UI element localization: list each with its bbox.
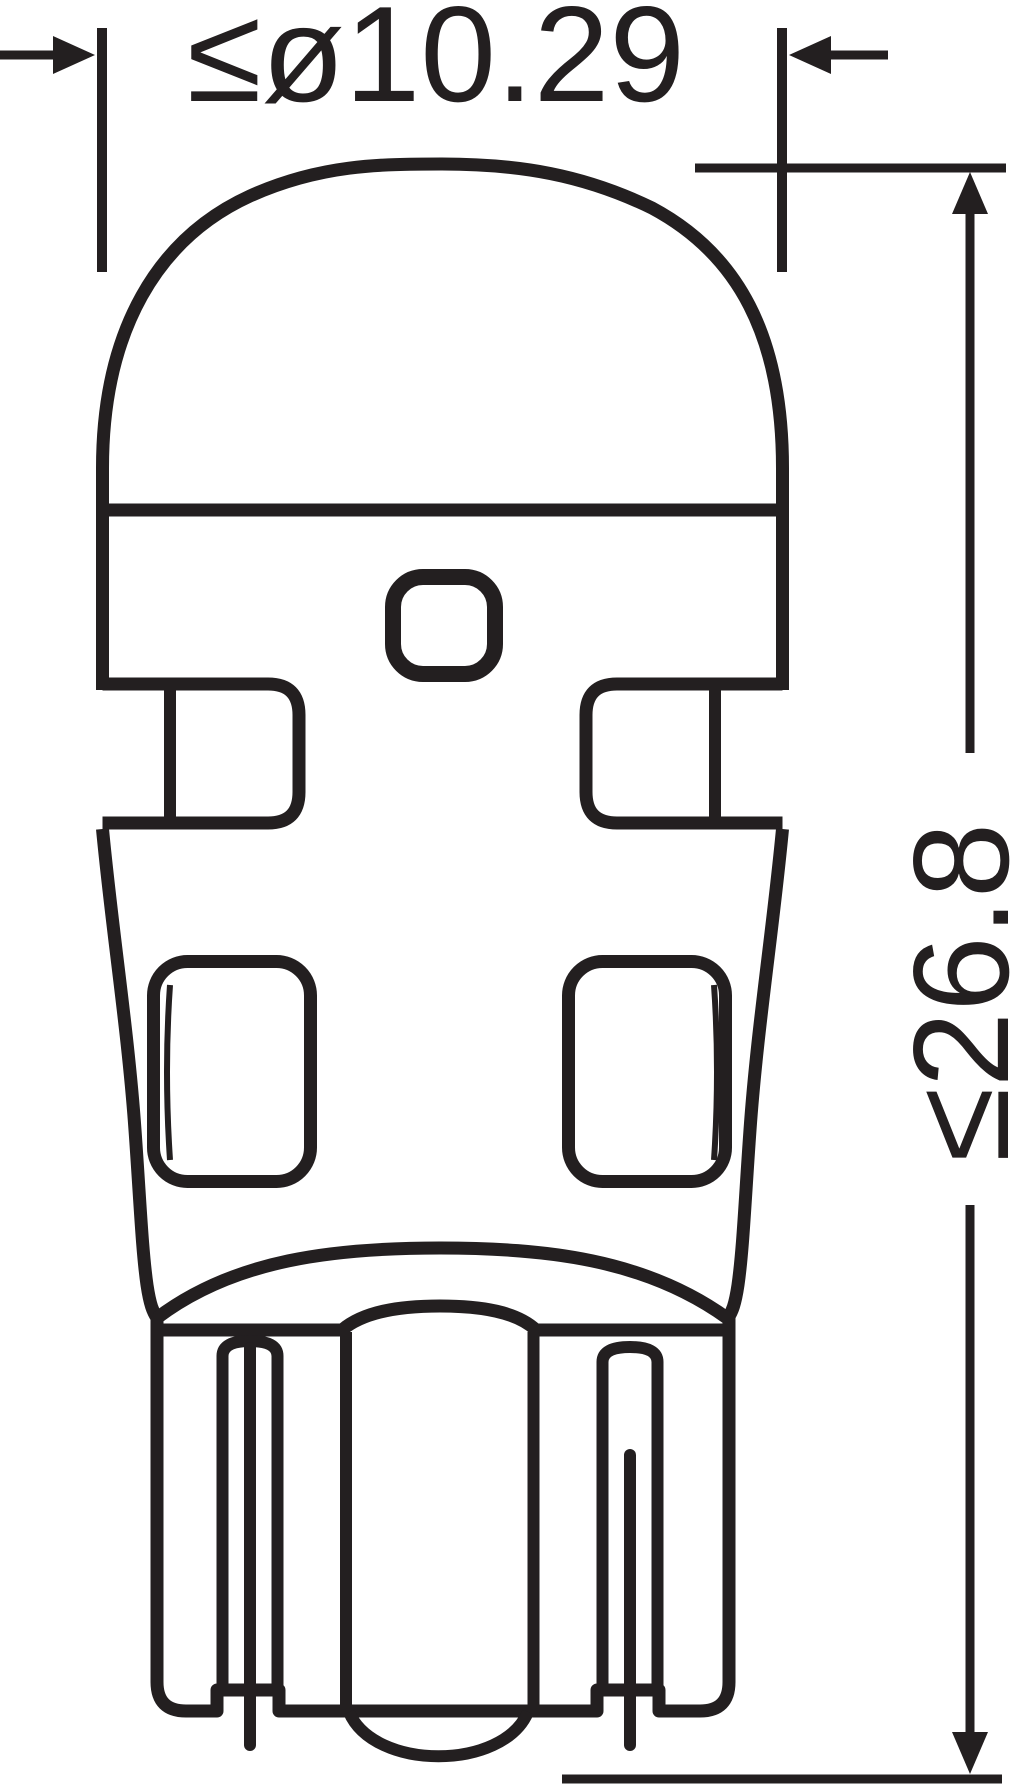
base-outline <box>157 1314 729 1711</box>
led-chip-right <box>569 962 726 1182</box>
skirt-lower-curve <box>157 1306 727 1330</box>
diameter-arrowhead-right-icon <box>789 36 831 74</box>
led-chip-left <box>154 962 311 1182</box>
dome-outline <box>103 164 783 690</box>
notch-left <box>103 684 300 823</box>
diameter-arrowhead-left-icon <box>53 36 95 74</box>
height-dimension-label: ≤26.8 <box>885 823 1024 1162</box>
led-chip-left-inner-line <box>167 985 170 1160</box>
bulb-technical-drawing: ≤ø10.29 ≤26.8 <box>0 0 1024 1784</box>
notch-right <box>586 684 783 823</box>
height-arrowhead-up-icon <box>952 172 988 214</box>
technical-drawing-page: ≤ø10.29 ≤26.8 <box>0 0 1024 1784</box>
diameter-dimension-label: ≤ø10.29 <box>187 0 685 130</box>
body-taper-right <box>728 829 783 1318</box>
glass-pip-arc <box>349 1712 528 1756</box>
diameter-dimension: ≤ø10.29 <box>0 0 888 272</box>
bulb-drawing <box>96 164 789 1756</box>
led-chip-right-inner-line <box>714 985 717 1160</box>
height-arrowhead-down-icon <box>952 1732 988 1774</box>
vent-hole <box>393 577 495 674</box>
